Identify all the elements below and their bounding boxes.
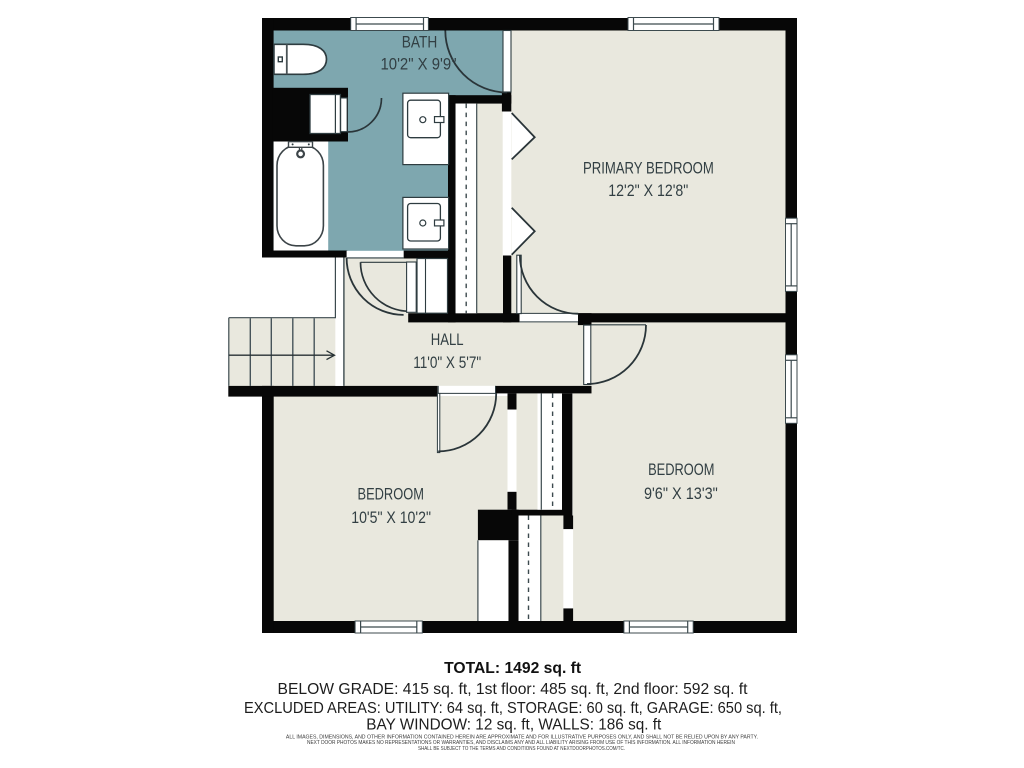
svg-text:BAY WINDOW: 12 sq. ft, WALLS:: BAY WINDOW: 12 sq. ft, WALLS: 186 sq. ft: [366, 717, 662, 734]
svg-text:10'5" X 10'2": 10'5" X 10'2": [351, 508, 431, 527]
svg-text:SHALL BE SUBJECT TO THE TERMS: SHALL BE SUBJECT TO THE TERMS AND CONDIT…: [418, 746, 625, 752]
svg-text:BELOW GRADE: 415 sq. ft, 1st f: BELOW GRADE: 415 sq. ft, 1st floor: 485 …: [278, 681, 749, 698]
svg-text:HALL: HALL: [431, 330, 464, 349]
svg-text:TOTAL: 1492 sq. ft: TOTAL: 1492 sq. ft: [444, 660, 582, 677]
svg-text:11'0" X 5'7": 11'0" X 5'7": [413, 353, 481, 372]
svg-text:9'6" X 13'3": 9'6" X 13'3": [644, 484, 718, 503]
svg-text:BEDROOM: BEDROOM: [648, 460, 714, 479]
svg-text:12'2" X 12'8": 12'2" X 12'8": [608, 181, 688, 200]
svg-text:10'2" X 9'9": 10'2" X 9'9": [381, 55, 457, 74]
svg-text:PRIMARY BEDROOM: PRIMARY BEDROOM: [583, 158, 714, 177]
svg-text:EXCLUDED AREAS: UTILITY: 64 sq: EXCLUDED AREAS: UTILITY: 64 sq. ft, STOR…: [244, 700, 782, 717]
svg-text:BEDROOM: BEDROOM: [358, 485, 424, 504]
svg-text:BATH: BATH: [402, 33, 438, 52]
